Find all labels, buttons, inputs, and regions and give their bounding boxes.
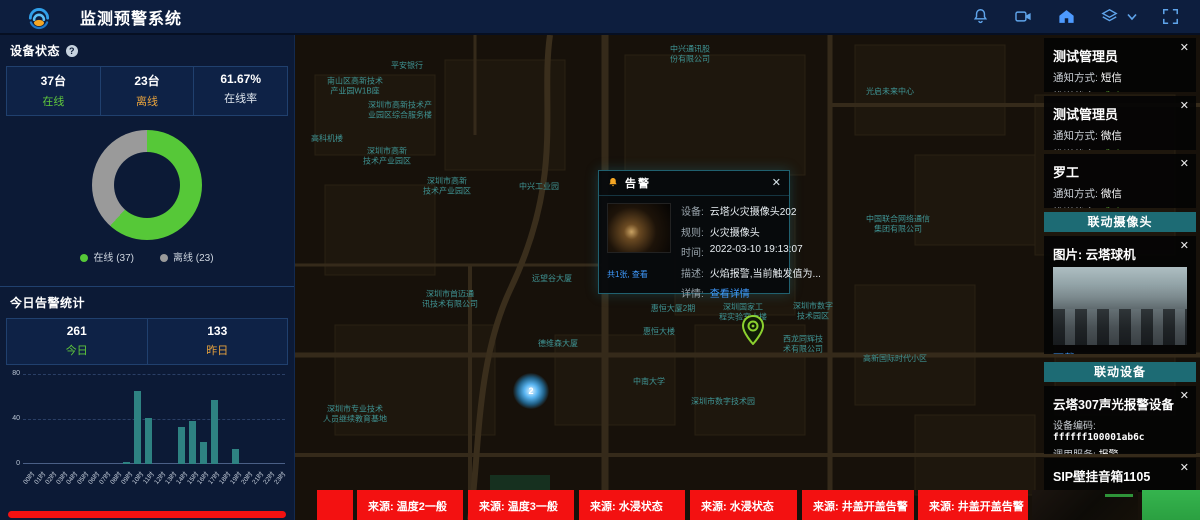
alarm-fields: 设备:云塔火灾摄像头202 规则:火灾摄像头 时间:2022-03-10 19:…	[681, 203, 821, 306]
bar-column	[209, 400, 220, 464]
view-detail-link[interactable]: 查看详情	[710, 285, 750, 300]
notify-card: ✕ 测试管理员 通知方式: 短信 推送状态: 成功	[1044, 38, 1196, 92]
close-icon[interactable]: ✕	[1180, 391, 1189, 402]
close-icon[interactable]: ✕	[1180, 101, 1189, 112]
alarm-thumb-col: 共1张, 查看	[607, 203, 671, 306]
notify-name: 罗工	[1053, 162, 1187, 181]
stat-online: 37台 在线	[7, 67, 100, 115]
sip-device-card: ✕ SIP壁挂音箱1105 设备编码: 1105	[1044, 458, 1196, 492]
close-icon[interactable]: ✕	[1180, 463, 1189, 474]
notify-card: ✕ 罗工 通知方式: 微信 推送状态: 成功	[1044, 154, 1196, 208]
bar-column	[176, 427, 187, 464]
alarm-device: 云塔火灾摄像头202	[710, 203, 797, 218]
y-tick: 40	[6, 415, 20, 422]
notify-card: ✕ 测试管理员 通知方式: 微信 推送状态: 成功	[1044, 96, 1196, 150]
fullscreen-icon[interactable]	[1161, 7, 1180, 26]
alarm-bell-icon	[607, 177, 619, 189]
map-cluster-marker[interactable]: 2	[513, 373, 549, 409]
close-icon[interactable]: ✕	[1180, 159, 1189, 170]
today-alarms-title: 今日告警统计	[0, 286, 294, 316]
alert-source-bar[interactable]: 来源: 水浸状态	[690, 490, 797, 520]
bar-column	[132, 391, 143, 464]
dashboard: 监测预警系统	[0, 0, 1200, 520]
app-header: 监测预警系统	[0, 0, 1200, 35]
left-panel: 设备状态 ? 37台 在线 23台 离线 61.67% 在线率 在线 (37) …	[0, 35, 295, 520]
download-link[interactable]: 下载	[1053, 353, 1075, 354]
alarm-desc: 火焰报警,当前触发值为...	[710, 265, 821, 280]
close-icon[interactable]: ✕	[1180, 43, 1189, 54]
stat-online-rate: 61.67% 在线率	[193, 67, 287, 115]
device-status-title: 设备状态 ?	[0, 35, 294, 64]
y-tick: 80	[6, 370, 20, 377]
notify-name: 测试管理员	[1053, 46, 1187, 65]
camera-image-label: 图片: 云塔球机	[1053, 244, 1187, 263]
bar-column	[231, 449, 242, 464]
device-status-donut-wrap	[0, 122, 294, 248]
video-camera-icon[interactable]	[1014, 7, 1033, 26]
alarm-popup-header: 告警 ✕	[599, 171, 789, 196]
unhandled-progress-bar	[8, 511, 286, 518]
linked-device-card: ✕ 云塔307声光报警设备 设备编码: ffffff100001ab6c 调用服…	[1044, 386, 1196, 454]
alarm-snapshot-image[interactable]	[607, 203, 671, 253]
home-icon[interactable]	[1057, 7, 1076, 26]
linked-camera-card: ✕ 图片: 云塔球机 下载	[1044, 236, 1196, 354]
bar-column	[143, 418, 154, 464]
donut-legend: 在线 (37) 离线 (23)	[0, 248, 294, 264]
chevron-down-icon[interactable]	[1127, 13, 1137, 21]
alarm-popup-body: 共1张, 查看 设备:云塔火灾摄像头202 规则:火灾摄像头 时间:2022-0…	[599, 196, 789, 306]
alert-source-bar[interactable]: 来源: 温度2一般	[357, 490, 463, 520]
header-actions	[971, 7, 1200, 26]
page-title: 监测预警系统	[80, 5, 182, 29]
linked-device-header: 联动设备	[1044, 362, 1196, 382]
alert-source-bar[interactable]: 来源: 井盖开盖告警	[918, 490, 1028, 520]
info-icon[interactable]: ?	[66, 45, 78, 57]
stat-offline: 23台 离线	[100, 67, 194, 115]
alarm-time: 2022-03-10 19:13:07	[710, 244, 803, 259]
x-tick-label: 23时	[271, 469, 287, 486]
bar-column	[198, 442, 209, 465]
sip-name: SIP壁挂音箱1105	[1053, 466, 1187, 485]
alert-source-bar[interactable]: 来源: 井盖开盖告警	[802, 490, 914, 520]
close-icon[interactable]: ✕	[772, 178, 781, 189]
device-status-stats: 37台 在线 23台 离线 61.67% 在线率	[6, 66, 288, 116]
green-thumbnail[interactable]	[1142, 490, 1200, 520]
device-name: 云塔307声光报警设备	[1053, 394, 1187, 413]
alarm-rule: 火灾摄像头	[710, 224, 760, 239]
alert-source-bar[interactable]	[317, 490, 353, 520]
close-icon[interactable]: ✕	[1180, 241, 1189, 252]
device-status-donut-chart	[92, 130, 202, 240]
notify-name: 测试管理员	[1053, 104, 1187, 123]
alert-source-bar[interactable]: 来源: 水浸状态	[579, 490, 685, 520]
camera-thumbnail[interactable]	[1032, 490, 1138, 520]
alert-source-bar[interactable]: 来源: 温度3一般	[468, 490, 574, 520]
hourly-alarm-bar-chart: 80 40 0 00时01时02时03时04时05时06时07时08时09时10…	[6, 369, 288, 501]
linked-camera-header: 联动摄像头	[1044, 212, 1196, 232]
camera-snapshot-image[interactable]	[1053, 267, 1187, 345]
alarm-snapshot-caption[interactable]: 共1张, 查看	[607, 269, 671, 280]
alarm-popup-title: 告警	[625, 175, 651, 191]
stat-yesterday: 133 昨日	[147, 319, 288, 364]
legend-online: 在线 (37)	[80, 249, 134, 264]
bar-column	[187, 421, 198, 464]
alarm-popup: 告警 ✕ 共1张, 查看 设备:云塔火灾摄像头202 规则:火灾摄像头 时间:2…	[598, 170, 790, 294]
map-pin-icon[interactable]	[742, 315, 764, 345]
stat-today: 261 今日	[7, 319, 147, 364]
bar-column	[121, 462, 132, 464]
app-logo-icon	[26, 4, 52, 30]
y-tick: 0	[6, 460, 20, 467]
legend-offline: 离线 (23)	[160, 249, 214, 264]
bell-icon[interactable]	[971, 7, 990, 26]
layers-icon[interactable]	[1100, 7, 1119, 26]
today-alarms-stats: 261 今日 133 昨日	[6, 318, 288, 365]
